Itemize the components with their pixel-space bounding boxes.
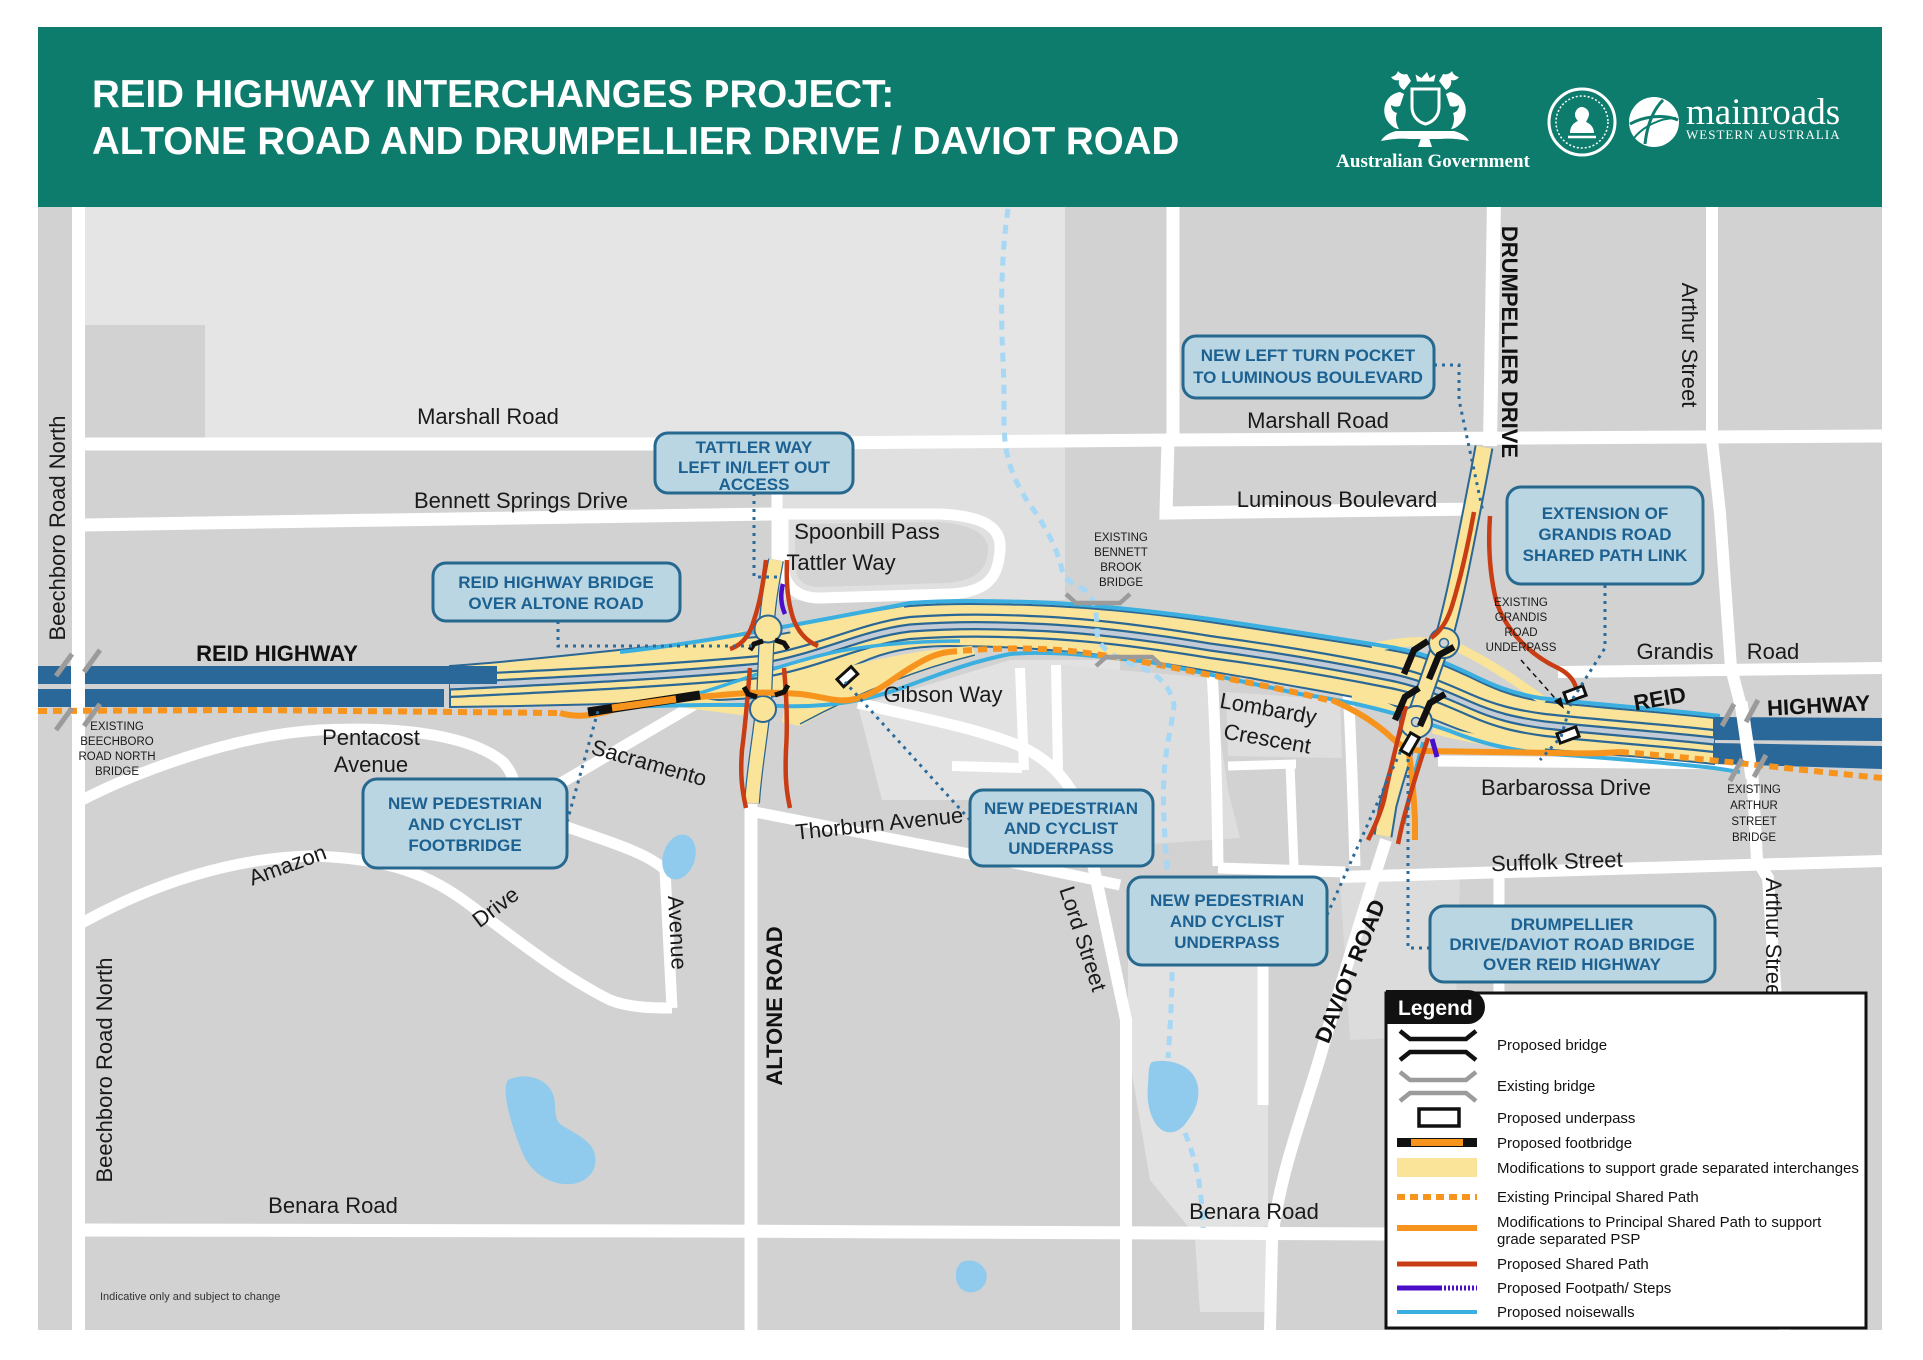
svg-text:Marshall Road: Marshall Road — [1247, 408, 1389, 433]
svg-text:Modifications to Principal Sha: Modifications to Principal Shared Path t… — [1497, 1214, 1822, 1231]
svg-text:EXISTING: EXISTING — [1727, 784, 1781, 796]
svg-text:EXISTING: EXISTING — [1494, 597, 1548, 609]
svg-text:Arthur Street: Arthur Street — [1761, 878, 1786, 1003]
svg-text:GRANDIS ROAD: GRANDIS ROAD — [1538, 525, 1671, 544]
svg-text:AND CYCLIST: AND CYCLIST — [408, 815, 523, 834]
svg-text:NEW PEDESTRIAN: NEW PEDESTRIAN — [1150, 891, 1304, 910]
svg-text:Indicative only and subject to: Indicative only and subject to change — [100, 1291, 280, 1303]
svg-text:REID HIGHWAY BRIDGE: REID HIGHWAY BRIDGE — [458, 573, 654, 592]
svg-text:Existing Principal Shared Path: Existing Principal Shared Path — [1497, 1189, 1699, 1206]
svg-text:Benara Road: Benara Road — [268, 1193, 398, 1218]
svg-text:Benara Road: Benara Road — [1189, 1199, 1319, 1224]
svg-text:Proposed bridge: Proposed bridge — [1497, 1037, 1607, 1054]
svg-text:Grandis: Grandis — [1636, 639, 1713, 664]
svg-text:ROAD: ROAD — [1504, 627, 1537, 639]
svg-text:Beechboro Road North: Beechboro Road North — [92, 957, 117, 1182]
svg-text:Marshall Road: Marshall Road — [417, 404, 559, 429]
svg-text:EXISTING: EXISTING — [1094, 532, 1148, 544]
svg-text:Proposed Shared Path: Proposed Shared Path — [1497, 1256, 1649, 1273]
svg-text:STREET: STREET — [1731, 816, 1776, 828]
svg-text:OVER ALTONE ROAD: OVER ALTONE ROAD — [468, 594, 643, 613]
svg-text:Barbarossa Drive: Barbarossa Drive — [1481, 775, 1651, 800]
svg-text:NEW LEFT TURN POCKET: NEW LEFT TURN POCKET — [1201, 346, 1416, 365]
svg-text:ACCESS: ACCESS — [719, 475, 790, 494]
svg-text:UNDERPASS: UNDERPASS — [1008, 839, 1113, 858]
svg-text:EXTENSION OF: EXTENSION OF — [1542, 504, 1669, 523]
svg-text:BEECHBORO: BEECHBORO — [80, 736, 154, 748]
svg-text:DRUMPELLIER: DRUMPELLIER — [1511, 915, 1634, 934]
svg-text:Avenue: Avenue — [663, 895, 692, 970]
svg-text:Road: Road — [1747, 639, 1800, 664]
svg-text:Suffolk Street: Suffolk Street — [1491, 847, 1623, 877]
svg-text:DRUMPELLIER DRIVE: DRUMPELLIER DRIVE — [1497, 226, 1522, 458]
svg-text:REID HIGHWAY INTERCHANGES PROJ: REID HIGHWAY INTERCHANGES PROJECT: — [92, 73, 894, 116]
svg-text:NEW PEDESTRIAN: NEW PEDESTRIAN — [984, 799, 1138, 818]
svg-text:UNDERPASS: UNDERPASS — [1174, 933, 1279, 952]
svg-text:Arthur Street: Arthur Street — [1677, 283, 1702, 408]
svg-text:AND CYCLIST: AND CYCLIST — [1170, 912, 1285, 931]
svg-text:BROOK: BROOK — [1100, 562, 1142, 574]
svg-text:Avenue: Avenue — [334, 752, 408, 777]
svg-text:BRIDGE: BRIDGE — [95, 766, 139, 778]
svg-text:BRIDGE: BRIDGE — [1099, 577, 1143, 589]
svg-text:Spoonbill Pass: Spoonbill Pass — [794, 519, 940, 544]
svg-text:ROAD NORTH: ROAD NORTH — [78, 751, 155, 763]
svg-text:NEW PEDESTRIAN: NEW PEDESTRIAN — [388, 794, 542, 813]
svg-text:grade separated PSP: grade separated PSP — [1497, 1231, 1640, 1248]
svg-text:REID HIGHWAY: REID HIGHWAY — [196, 641, 358, 666]
svg-text:EXISTING: EXISTING — [90, 721, 144, 733]
svg-text:Tattler Way: Tattler Way — [786, 550, 895, 575]
svg-text:ALTONE ROAD: ALTONE ROAD — [762, 926, 787, 1085]
svg-text:SHARED PATH LINK: SHARED PATH LINK — [1523, 546, 1688, 565]
svg-text:TATTLER WAY: TATTLER WAY — [696, 438, 813, 457]
svg-text:Pentacost: Pentacost — [322, 725, 420, 750]
svg-text:Gibson Way: Gibson Way — [883, 682, 1002, 707]
svg-text:Modifications to support grade: Modifications to support grade separated… — [1497, 1160, 1859, 1177]
svg-text:Proposed Footpath/ Steps: Proposed Footpath/ Steps — [1497, 1280, 1671, 1297]
svg-text:Proposed footbridge: Proposed footbridge — [1497, 1135, 1632, 1152]
svg-text:DRIVE/DAVIOT ROAD BRIDGE: DRIVE/DAVIOT ROAD BRIDGE — [1449, 935, 1694, 954]
svg-text:ALTONE ROAD AND DRUMPELLIER DR: ALTONE ROAD AND DRUMPELLIER DRIVE / DAVI… — [92, 120, 1179, 163]
svg-text:ARTHUR: ARTHUR — [1730, 800, 1778, 812]
svg-text:AND CYCLIST: AND CYCLIST — [1004, 819, 1119, 838]
svg-text:Beechboro Road North: Beechboro Road North — [45, 415, 70, 640]
svg-text:Proposed noisewalls: Proposed noisewalls — [1497, 1304, 1635, 1321]
svg-text:BRIDGE: BRIDGE — [1732, 832, 1776, 844]
svg-text:FOOTBRIDGE: FOOTBRIDGE — [408, 836, 521, 855]
svg-text:BENNETT: BENNETT — [1094, 547, 1148, 559]
svg-text:Proposed underpass: Proposed underpass — [1497, 1110, 1635, 1127]
svg-text:WESTERN AUSTRALIA: WESTERN AUSTRALIA — [1686, 127, 1841, 142]
svg-text:TO LUMINOUS BOULEVARD: TO LUMINOUS BOULEVARD — [1193, 368, 1423, 387]
svg-text:Bennett Springs Drive: Bennett Springs Drive — [414, 488, 628, 513]
svg-text:Luminous Boulevard: Luminous Boulevard — [1237, 487, 1438, 512]
svg-text:Existing bridge: Existing bridge — [1497, 1078, 1595, 1095]
svg-text:UNDERPASS: UNDERPASS — [1486, 642, 1557, 654]
svg-text:Legend: Legend — [1398, 997, 1473, 1020]
svg-text:Australian Government: Australian Government — [1336, 151, 1530, 172]
svg-text:OVER REID HIGHWAY: OVER REID HIGHWAY — [1483, 955, 1662, 974]
svg-text:GRANDIS: GRANDIS — [1495, 612, 1548, 624]
